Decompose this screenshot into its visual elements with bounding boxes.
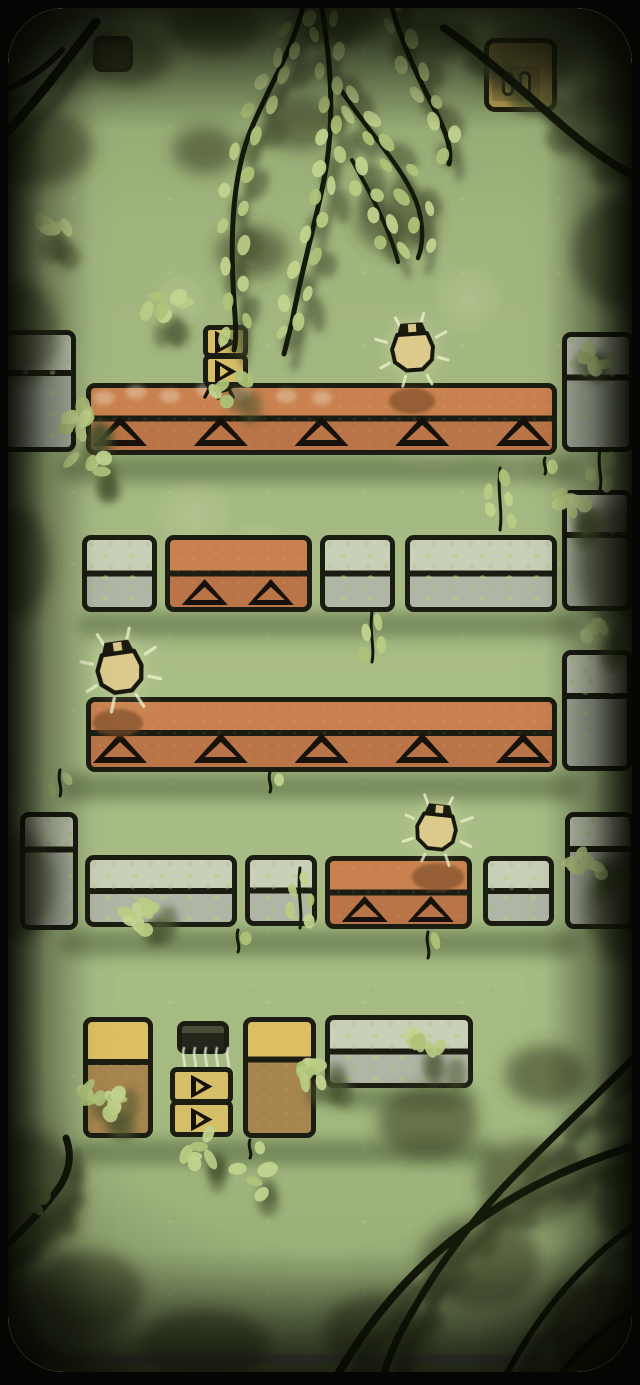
branch-layer [8,8,632,1372]
game-screen [8,8,632,1372]
phone-frame [0,0,640,1385]
